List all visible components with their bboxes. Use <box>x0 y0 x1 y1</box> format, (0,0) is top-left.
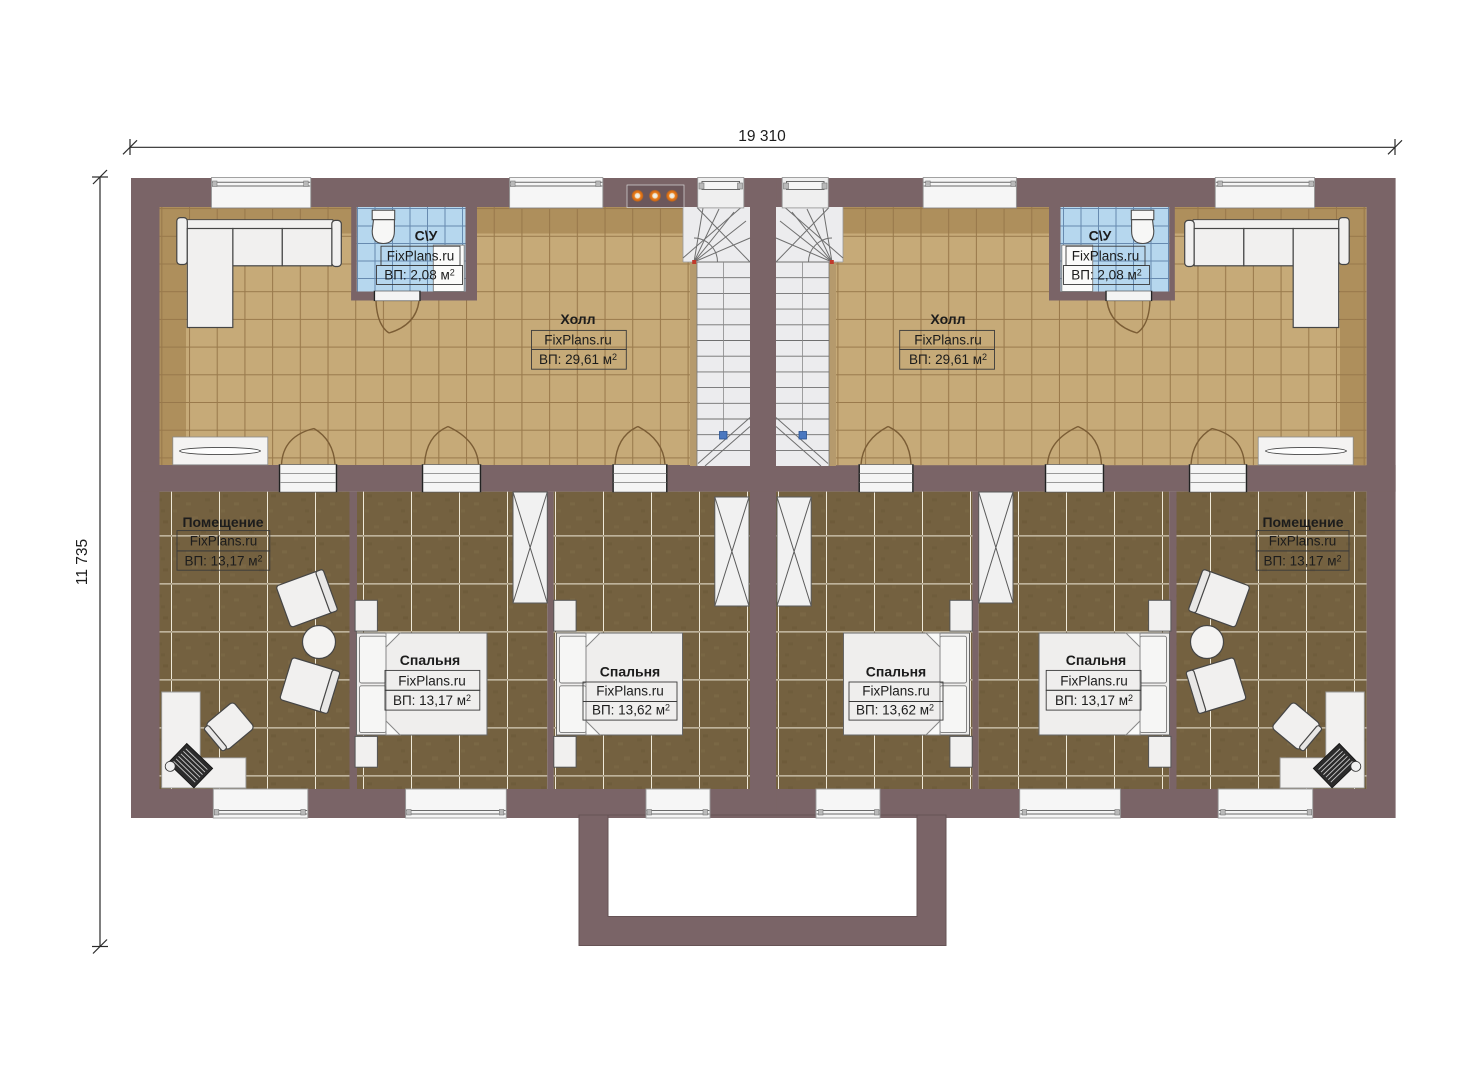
svg-text:FixPlans.ru: FixPlans.ru <box>398 673 466 688</box>
svg-text:ВП: 29,61 м2: ВП: 29,61 м2 <box>909 352 987 367</box>
svg-text:С\У: С\У <box>1089 228 1112 244</box>
svg-text:ВП: 2,08 м2: ВП: 2,08 м2 <box>1071 268 1142 283</box>
svg-text:ВП: 2,08 м2: ВП: 2,08 м2 <box>384 268 455 283</box>
svg-text:Спальня: Спальня <box>1066 652 1126 668</box>
svg-text:Помещение: Помещение <box>1262 514 1343 530</box>
svg-text:FixPlans.ru: FixPlans.ru <box>596 684 664 699</box>
svg-text:FixPlans.ru: FixPlans.ru <box>1060 673 1128 688</box>
svg-text:С\У: С\У <box>415 228 438 244</box>
svg-text:FixPlans.ru: FixPlans.ru <box>914 333 982 348</box>
svg-text:ВП: 13,17 м2: ВП: 13,17 м2 <box>1055 693 1133 708</box>
svg-text:19 310: 19 310 <box>738 128 786 145</box>
svg-text:Спальня: Спальня <box>866 664 926 680</box>
svg-text:FixPlans.ru: FixPlans.ru <box>190 534 258 549</box>
svg-text:Помещение: Помещение <box>182 514 263 530</box>
svg-text:ВП: 13,62 м2: ВП: 13,62 м2 <box>592 703 670 718</box>
svg-text:ВП: 13,17 м2: ВП: 13,17 м2 <box>1263 554 1341 569</box>
svg-text:FixPlans.ru: FixPlans.ru <box>1072 249 1140 264</box>
svg-text:FixPlans.ru: FixPlans.ru <box>544 333 612 348</box>
svg-text:Спальня: Спальня <box>400 652 460 668</box>
svg-text:11 735: 11 735 <box>74 539 91 585</box>
svg-text:FixPlans.ru: FixPlans.ru <box>387 249 455 264</box>
svg-text:FixPlans.ru: FixPlans.ru <box>1269 534 1337 549</box>
svg-text:Спальня: Спальня <box>600 664 660 680</box>
svg-text:FixPlans.ru: FixPlans.ru <box>862 684 930 699</box>
svg-text:Холл: Холл <box>560 311 595 327</box>
svg-text:ВП: 13,62 м2: ВП: 13,62 м2 <box>856 703 934 718</box>
svg-text:Холл: Холл <box>930 311 965 327</box>
svg-text:ВП: 29,61 м2: ВП: 29,61 м2 <box>539 352 617 367</box>
svg-text:ВП: 13,17 м2: ВП: 13,17 м2 <box>184 554 262 569</box>
svg-text:ВП: 13,17 м2: ВП: 13,17 м2 <box>393 693 471 708</box>
